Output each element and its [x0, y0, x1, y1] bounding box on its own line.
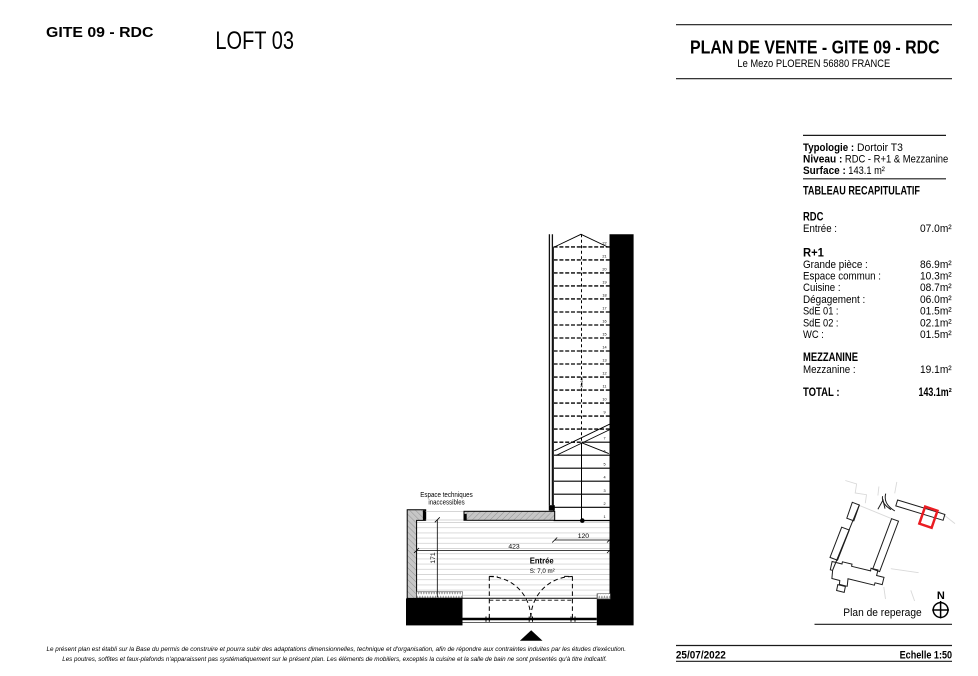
svg-text:RDC: RDC	[803, 212, 823, 224]
svg-text:19: 19	[602, 281, 606, 285]
svg-text:Mezzanine :: Mezzanine :	[803, 364, 856, 376]
svg-text:01.5m²: 01.5m²	[920, 329, 952, 341]
svg-text:Plan de reperage: Plan de reperage	[843, 607, 921, 619]
svg-text:S: 7,0 m²: S: 7,0 m²	[530, 568, 556, 575]
svg-text:143.1m²: 143.1m²	[919, 387, 952, 399]
svg-text:MEZZANINE: MEZZANINE	[803, 352, 858, 364]
svg-text:inaccessibles: inaccessibles	[428, 500, 465, 507]
svg-text:17: 17	[602, 307, 606, 311]
svg-text:LOFT 03: LOFT 03	[215, 28, 294, 55]
svg-text:GITE 09 - RDC: GITE 09 - RDC	[46, 25, 153, 41]
svg-text:TOTAL :: TOTAL :	[803, 387, 840, 399]
svg-text:30x18: 30x18	[580, 378, 584, 387]
svg-text:WC :: WC :	[803, 329, 824, 341]
svg-text:22: 22	[602, 242, 606, 246]
svg-text:20: 20	[602, 268, 606, 272]
svg-text:6: 6	[603, 450, 605, 454]
svg-text:R+1: R+1	[803, 247, 824, 259]
svg-text:Dégagement :: Dégagement :	[803, 294, 865, 306]
svg-text:Dortoir T3: Dortoir T3	[857, 142, 903, 154]
svg-text:423: 423	[508, 543, 520, 550]
svg-text:2: 2	[603, 502, 605, 506]
svg-text:21: 21	[602, 255, 606, 259]
svg-text:25/07/2022: 25/07/2022	[676, 649, 726, 661]
svg-text:19.1m²: 19.1m²	[920, 364, 952, 376]
svg-text:TABLEAU RECAPITULATIF: TABLEAU RECAPITULATIF	[803, 186, 920, 198]
svg-text:Espace commun :: Espace commun :	[803, 271, 881, 283]
svg-text:3: 3	[603, 489, 605, 493]
svg-text:86.9m²: 86.9m²	[920, 259, 952, 271]
svg-text:5: 5	[603, 463, 605, 467]
svg-text:Le Mezo PLOEREN 56880 FRANCE: Le Mezo PLOEREN 56880 FRANCE	[737, 58, 890, 70]
svg-text:14: 14	[602, 346, 606, 350]
svg-text:08.7m²: 08.7m²	[920, 282, 952, 294]
svg-text:01.5m²: 01.5m²	[920, 306, 952, 318]
svg-text:10: 10	[602, 398, 606, 402]
svg-text:Espace techniques: Espace techniques	[420, 492, 473, 499]
svg-text:12: 12	[602, 372, 606, 376]
svg-text:9: 9	[603, 411, 605, 415]
svg-text:7: 7	[603, 437, 605, 441]
svg-text:Typologie :: Typologie :	[803, 142, 854, 154]
svg-text:143.1 m²: 143.1 m²	[848, 165, 885, 177]
svg-text:Entrée :: Entrée :	[803, 223, 837, 235]
svg-text:SdE 01 :: SdE 01 :	[803, 306, 839, 318]
svg-text:1: 1	[603, 515, 605, 519]
svg-text:Cuisine :: Cuisine :	[803, 282, 841, 294]
svg-text:06.0m²: 06.0m²	[920, 294, 952, 306]
svg-text:07.0m²: 07.0m²	[920, 223, 952, 235]
svg-text:4: 4	[603, 476, 605, 480]
svg-text:Les poutres, soffites et faux-: Les poutres, soffites et faux-plafonds n…	[62, 656, 607, 663]
svg-text:16: 16	[602, 320, 606, 324]
svg-text:Niveau :: Niveau :	[803, 154, 842, 166]
svg-text:Entrée: Entrée	[530, 557, 555, 566]
svg-text:13: 13	[602, 359, 606, 363]
svg-text:171: 171	[430, 552, 437, 564]
svg-text:10.3m²: 10.3m²	[920, 271, 952, 283]
svg-text:11: 11	[603, 385, 607, 389]
svg-text:18: 18	[602, 294, 606, 298]
svg-text:120: 120	[578, 533, 590, 540]
svg-text:PLAN DE VENTE - GITE 09 - RDC: PLAN DE VENTE - GITE 09 - RDC	[690, 38, 940, 58]
svg-text:Grande pièce :: Grande pièce :	[803, 259, 868, 271]
svg-text:Echelle 1:50: Echelle 1:50	[900, 649, 953, 661]
svg-text:02.1m²: 02.1m²	[920, 317, 952, 329]
svg-text:N: N	[937, 590, 945, 602]
svg-text:SdE 02 :: SdE 02 :	[803, 317, 839, 329]
svg-text:Surface :: Surface :	[803, 165, 846, 177]
svg-text:RDC - R+1 & Mezzanine: RDC - R+1 & Mezzanine	[845, 154, 948, 166]
svg-text:15: 15	[602, 333, 606, 337]
svg-text:Le présent plan est établi sur: Le présent plan est établi sur la Base d…	[47, 646, 627, 653]
